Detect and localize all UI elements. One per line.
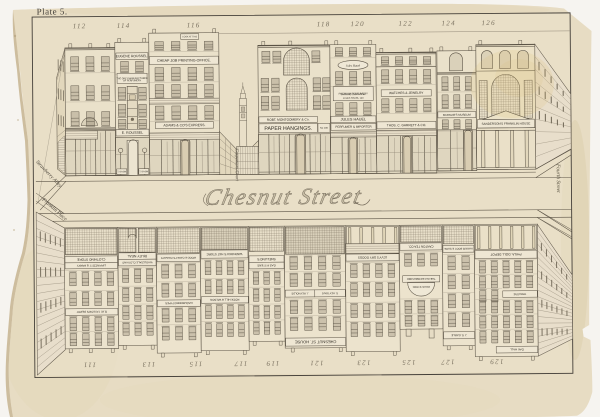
svg-text:PHILA. DOLL DEPOT: PHILA. DOLL DEPOT [490, 252, 521, 256]
svg-text:BARNUM'S MUSEUM: BARNUM'S MUSEUM [443, 113, 471, 117]
svg-text:HARRIS BOOT & SHOE: HARRIS BOOT & SHOE [444, 247, 473, 251]
svg-text:ADAMS & CO'S EXPRESS.: ADAMS & CO'S EXPRESS. [163, 123, 205, 127]
svg-text:ROBT. MONTGOMERY & Co.: ROBT. MONTGOMERY & Co. [267, 118, 310, 122]
svg-text:124: 124 [441, 19, 455, 27]
svg-text:JULES HAUEL: JULES HAUEL [341, 117, 367, 121]
svg-text:GAS FITTERS: GAS FITTERS [257, 263, 276, 267]
svg-text:113: 113 [141, 360, 155, 368]
svg-text:DRUG STORE: DRUG STORE [412, 285, 430, 289]
svg-text:CHEAP JOB PRINTING-OFFICE.: CHEAP JOB PRINTING-OFFICE. [157, 58, 211, 62]
svg-text:CANTON TEA CO.: CANTON TEA CO. [408, 244, 433, 248]
svg-text:S. HEYTON'S: S. HEYTON'S [322, 291, 338, 295]
svg-text:DAGUERREOTYPES: DAGUERREOTYPES [165, 301, 192, 305]
svg-text:CLOTHING STORE: CLOTHING STORE [77, 257, 105, 261]
svg-text:125: 125 [401, 358, 415, 366]
svg-text:123: 123 [356, 358, 370, 366]
svg-text:WARNOCK'S HAT STORE: WARNOCK'S HAT STORE [207, 252, 243, 256]
svg-text:RILEY NEAL: RILEY NEAL [127, 254, 147, 258]
svg-text:J. S. EARLE: J. S. EARLE [451, 333, 467, 337]
svg-text:THEATRE: THEATRE [513, 292, 526, 296]
svg-text:119: 119 [265, 359, 279, 367]
svg-text:118: 118 [317, 20, 331, 28]
svg-text:111: 111 [83, 361, 96, 369]
svg-text:EUGENE ROUSSEL.: EUGENE ROUSSEL. [116, 54, 148, 58]
svg-text:115: 115 [188, 360, 202, 368]
svg-text:E. ROUSSEL: E. ROUSSEL [122, 131, 144, 135]
svg-text:116: 116 [187, 21, 201, 29]
svg-text:LIPPINCOTT & PARRY: LIPPINCOTT & PARRY [77, 264, 106, 268]
svg-text:OF PERFUMERY: OF PERFUMERY [123, 80, 142, 82]
svg-text:THOS. C. GARRETT & CO.: THOS. C. GARRETT & CO. [387, 123, 427, 127]
svg-text:No 106: No 106 [320, 127, 328, 130]
svg-text:120: 120 [350, 20, 364, 28]
svg-text:114: 114 [117, 22, 131, 30]
svg-text:JULES HAUEL 120: JULES HAUEL 120 [343, 97, 364, 100]
svg-text:SANDERSON'S FRANKLIN HOUSE: SANDERSON'S FRANKLIN HOUSE [482, 121, 531, 125]
svg-text:CHESNUT ST. HOUSE: CHESNUT ST. HOUSE [295, 339, 337, 344]
svg-text:Jules Hauel: Jules Hauel [346, 64, 360, 68]
svg-text:Chesnut Street: Chesnut Street [203, 184, 365, 211]
svg-text:WHOLESALE CLOTHING: WHOLESALE CLOTHING [122, 260, 152, 264]
svg-text:122: 122 [398, 20, 412, 28]
svg-text:Carpenters Court: Carpenters Court [235, 148, 240, 181]
svg-text:Fourth Street: Fourth Street [555, 163, 561, 193]
svg-text:PAPER HANGINGS.: PAPER HANGINGS. [264, 126, 312, 132]
svg-text:121: 121 [309, 359, 323, 367]
svg-text:WATCHES & JEWELRY: WATCHES & JEWELRY [389, 91, 424, 95]
svg-text:129: 129 [489, 357, 503, 365]
svg-text:SNELLING'S: SNELLING'S [257, 257, 276, 261]
svg-text:THE OLD ESTABLISHED: THE OLD ESTABLISHED [407, 277, 436, 280]
svg-text:126: 126 [481, 19, 495, 27]
svg-text:127: 127 [440, 358, 454, 366]
svg-text:SHAVING CREAMS &c: SHAVING CREAMS &c [341, 93, 367, 96]
svg-text:G.W. TAYLOR'S DEPOT: G.W. TAYLOR'S DEPOT [76, 310, 107, 314]
svg-text:112: 112 [73, 22, 87, 30]
svg-text:OAK HALL: OAK HALL [510, 347, 524, 351]
svg-text:117: 117 [233, 359, 247, 367]
svg-text:PERFUMER & IMPORTER: PERFUMER & IMPORTER [335, 125, 372, 129]
svg-text:Plate 5.: Plate 5. [37, 6, 68, 16]
svg-text:LEVY'S DRY GOODS: LEVY'S DRY GOODS [358, 255, 387, 259]
svg-text:J. REYNOLDS: J. REYNOLDS [291, 292, 308, 296]
svg-text:WOOD & CAREY'S CRAVATS: WOOD & CAREY'S CRAVATS [161, 256, 196, 260]
svg-text:T. BASIN: T. BASIN [117, 170, 126, 173]
svg-text:LOOK AT THIS: LOOK AT THIS [182, 35, 197, 38]
svg-text:T. BASIN: T. BASIN [139, 170, 148, 173]
svg-text:ROCK HILL & WILSON: ROCK HILL & WILSON [210, 298, 239, 302]
